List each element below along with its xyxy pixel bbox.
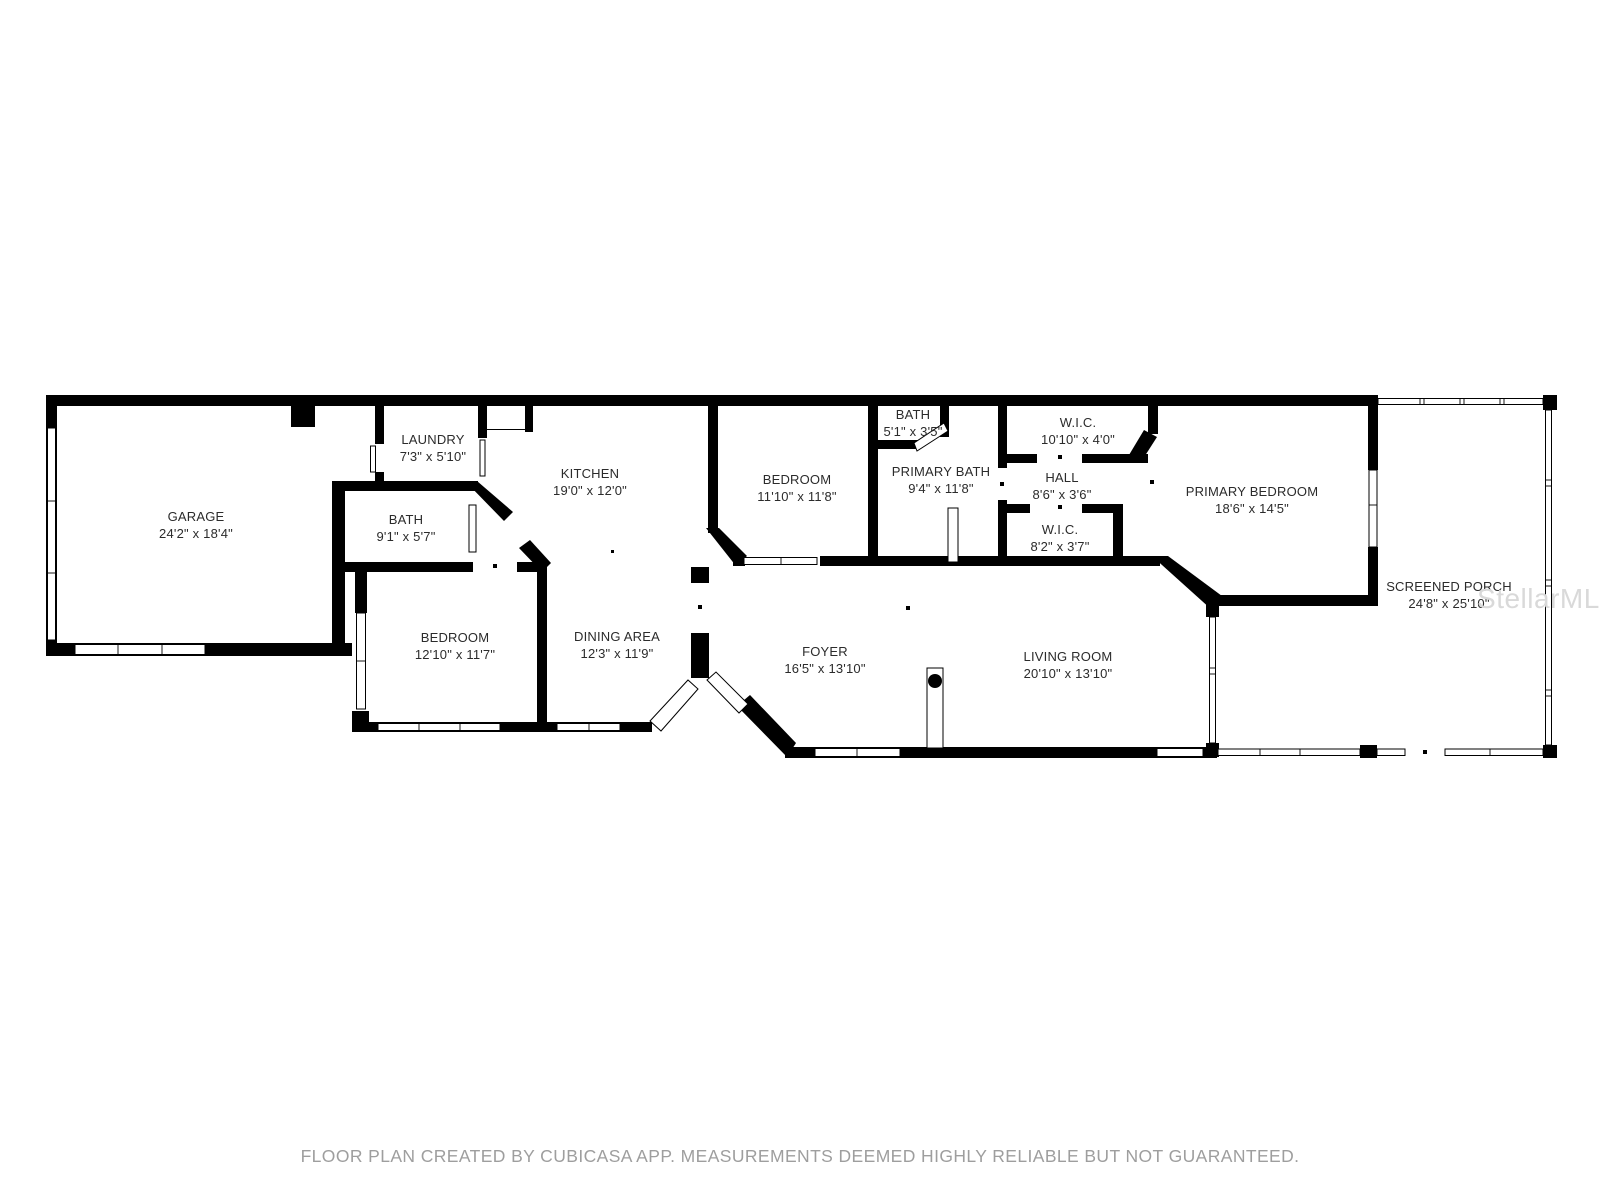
room-label-bath-2: BATH: [896, 407, 931, 422]
door-leaf: [469, 505, 476, 552]
room-dims-dining-area: 12'3" x 11'9": [581, 646, 654, 661]
room-dims-laundry: 7'3" x 5'10": [400, 449, 467, 464]
window: [1157, 749, 1203, 757]
room-label-kitchen: KITCHEN: [561, 466, 619, 481]
room-dims-foyer: 16'5" x 13'10": [784, 661, 866, 676]
room-label-dining-area: DINING AREA: [574, 629, 660, 644]
window: [1369, 470, 1377, 547]
room-dims-wic-2: 8'2" x 3'7": [1030, 539, 1089, 554]
room-dims-wic-1: 10'10" x 4'0": [1041, 432, 1115, 447]
window: [744, 558, 817, 565]
door-leaf: [948, 508, 958, 562]
screen-wall: [1378, 399, 1543, 405]
walls: [46, 395, 1557, 758]
room-label-foyer: FOYER: [802, 644, 848, 659]
door-leaf: [371, 446, 376, 472]
room-label-primary-bedroom: PRIMARY BEDROOM: [1186, 484, 1319, 499]
room-dims-living-room: 20'10" x 13'10": [1024, 666, 1113, 681]
room-label-wic-1: W.I.C.: [1060, 415, 1097, 430]
room-label-living-room: LIVING ROOM: [1024, 649, 1113, 664]
window: [707, 672, 748, 713]
window: [75, 645, 205, 655]
room-label-bedroom-top: BEDROOM: [763, 472, 832, 487]
fixtures: [927, 668, 943, 748]
room-dims-bedroom-bottom: 12'10" x 11'7": [415, 647, 496, 662]
room-label-wic-2: W.I.C.: [1042, 522, 1079, 537]
window: [48, 428, 56, 640]
room-dims-garage: 24'2" x 18'4": [159, 526, 233, 541]
stellar-mls-watermark: StellarMLS: [1477, 583, 1600, 614]
screen-wall: [1377, 749, 1405, 756]
screen-wall: [1546, 410, 1552, 745]
room-label-bath-1: BATH: [389, 512, 424, 527]
room-dims-hall: 8'6" x 3'6": [1032, 487, 1091, 502]
room-label-bedroom-bottom: BEDROOM: [421, 630, 490, 645]
room-dims-primary-bedroom: 18'6" x 14'5": [1215, 501, 1289, 516]
floor-plan-canvas: GARAGE 24'2" x 18'4" LAUNDRY 7'3" x 5'10…: [0, 0, 1600, 1200]
door-leaf: [480, 440, 485, 476]
screen-wall: [1210, 617, 1216, 743]
window: [557, 724, 620, 731]
window: [378, 724, 500, 731]
room-label-hall: HALL: [1045, 470, 1078, 485]
room-dims-bedroom-top: 11'10" x 11'8": [757, 489, 837, 504]
column-post: [928, 674, 942, 688]
screen-wall: [1445, 749, 1543, 756]
footer-disclaimer: FLOOR PLAN CREATED BY CUBICASA APP. MEAS…: [301, 1146, 1300, 1166]
window: [815, 749, 900, 757]
room-dims-bath-1: 9'1" x 5'7": [376, 529, 435, 544]
room-dims-kitchen: 19'0" x 12'0": [553, 483, 627, 498]
room-label-garage: GARAGE: [168, 509, 225, 524]
window: [650, 680, 698, 731]
room-label-laundry: LAUNDRY: [401, 432, 464, 447]
screen-wall: [1218, 749, 1360, 756]
room-dims-primary-bath: 9'4" x 11'8": [908, 481, 974, 496]
room-dims-bath-2: 5'1" x 3'5": [883, 424, 942, 439]
porch-screen-walls: [1210, 399, 1552, 756]
room-label-primary-bath: PRIMARY BATH: [892, 464, 990, 479]
floor-plan-page: GARAGE 24'2" x 18'4" LAUNDRY 7'3" x 5'10…: [0, 0, 1600, 1200]
